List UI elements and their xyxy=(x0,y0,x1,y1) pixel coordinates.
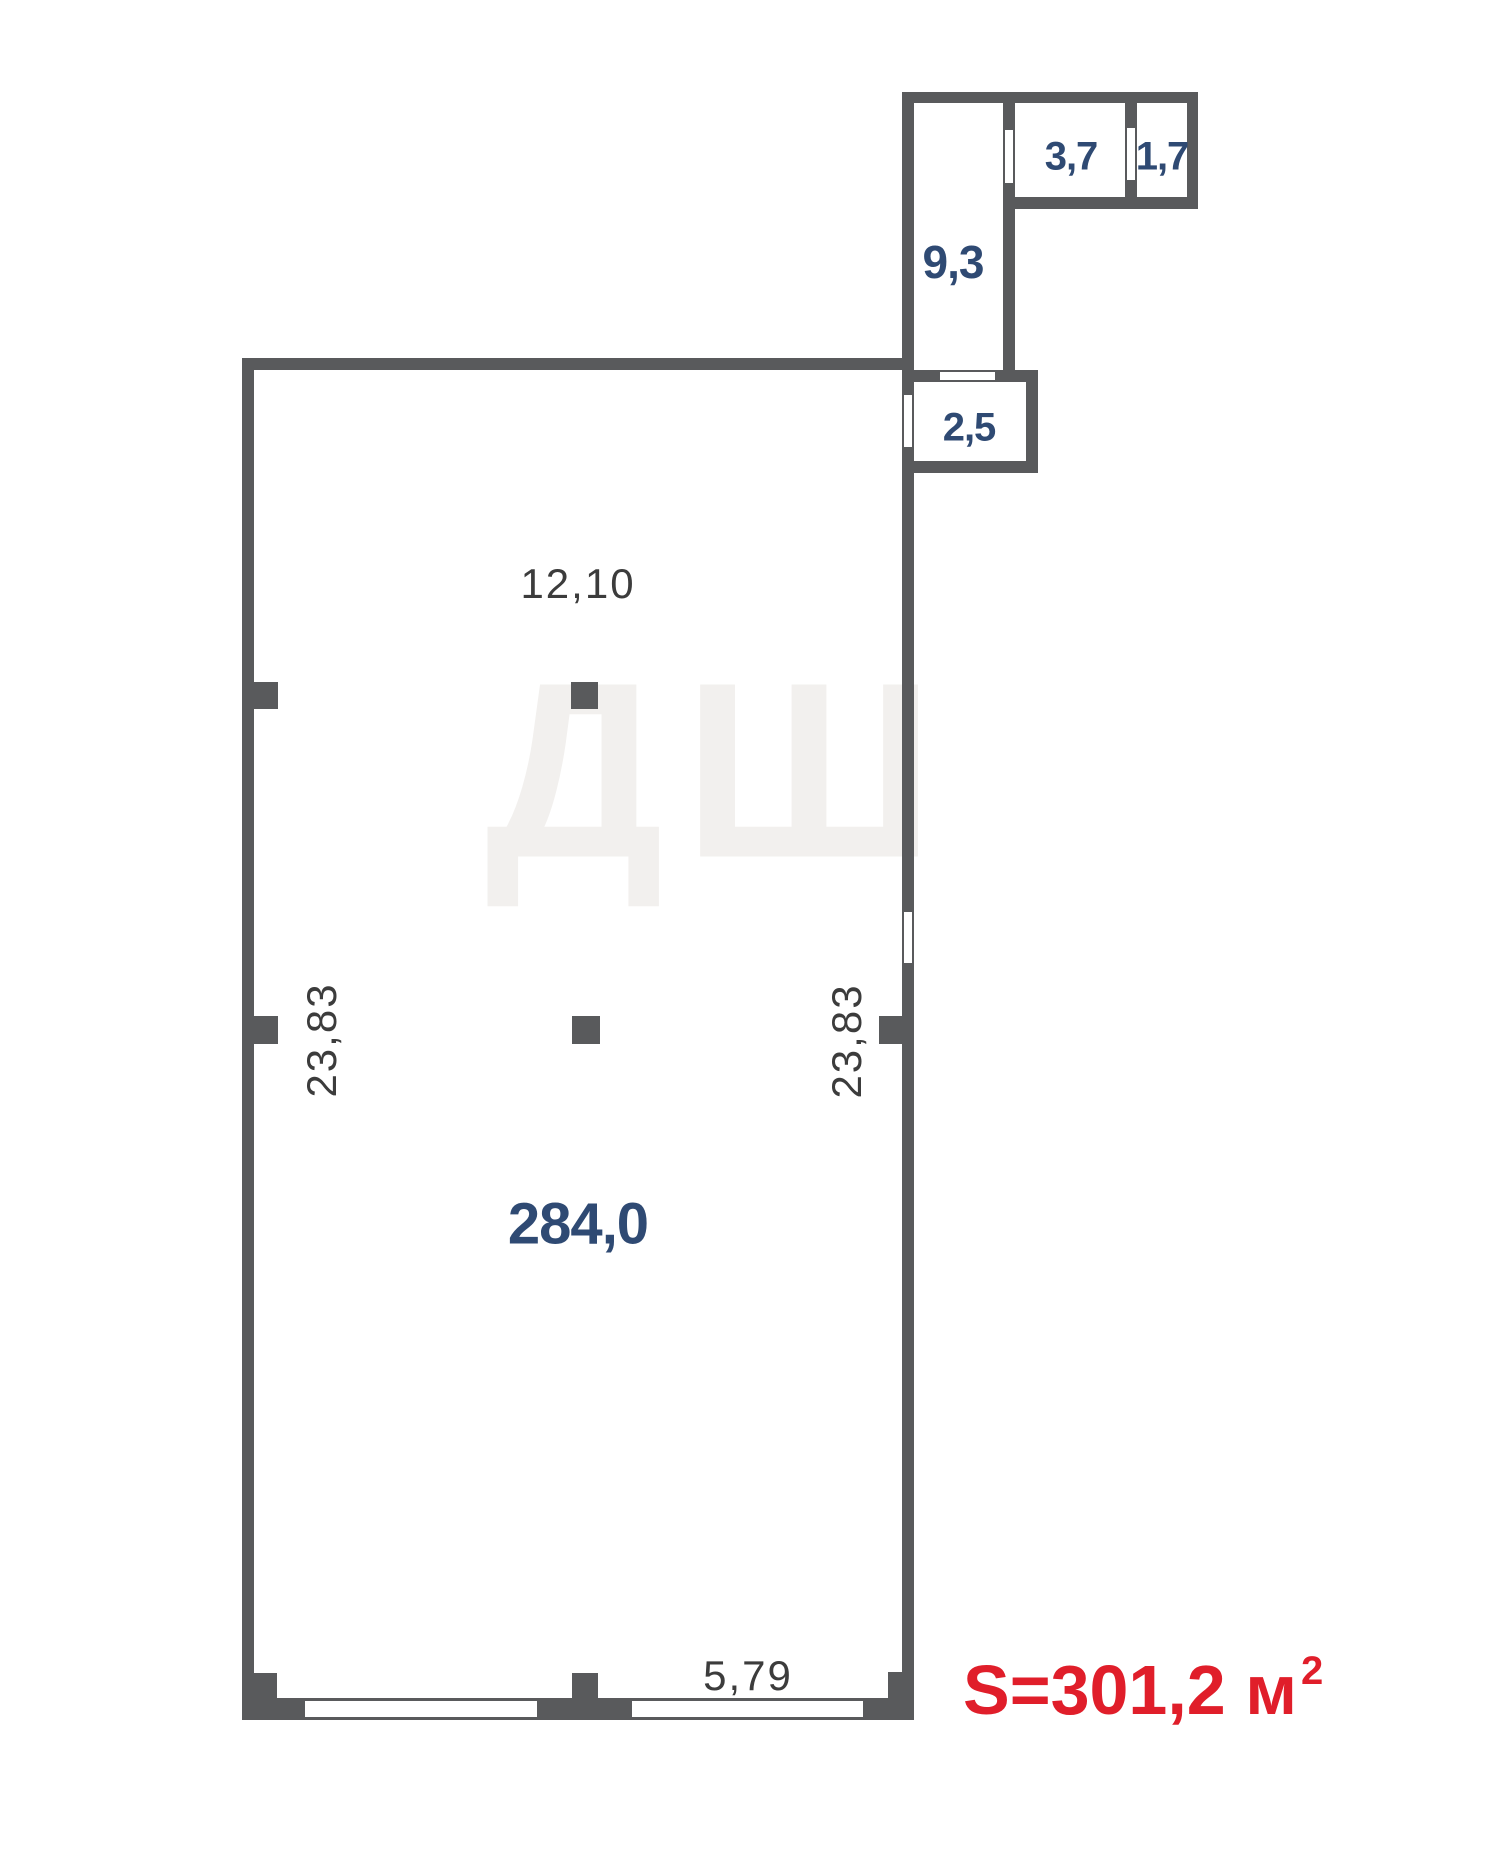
annex-rooms-bottom-wall xyxy=(1003,197,1198,209)
center-column-1 xyxy=(571,682,598,709)
bottom-window-2 xyxy=(632,1701,863,1717)
floor-plan: ДШ 284,0 9,3 3,7 1,7 2,5 12,10 23,83 23,… xyxy=(0,0,1500,1858)
door-25-to-main xyxy=(902,395,914,447)
dimension-bottom-width: 5,79 xyxy=(703,1652,793,1700)
r25-right-wall xyxy=(1026,370,1038,473)
left-wall-pilaster-1 xyxy=(254,682,278,709)
total-area-superscript: 2 xyxy=(1301,1649,1323,1693)
left-wall-pilaster-2 xyxy=(254,1016,278,1044)
main-top-wall xyxy=(242,358,914,370)
bottom-center-column xyxy=(572,1673,598,1699)
corridor-left-wall xyxy=(902,92,914,370)
right-wall-pilaster-2 xyxy=(879,1016,902,1044)
corridor-area-label: 9,3 xyxy=(923,235,984,289)
main-right-wall-door xyxy=(902,912,914,963)
watermark: ДШ xyxy=(485,627,954,914)
annex-right-wall xyxy=(1187,92,1198,209)
room-37-area-label: 3,7 xyxy=(1045,135,1098,180)
total-area-text: S=301,2 м xyxy=(963,1651,1297,1729)
dimension-top-width: 12,10 xyxy=(520,560,635,608)
bottom-window-1 xyxy=(305,1701,537,1717)
annex-top-wall xyxy=(902,92,1198,103)
door-corridor-to-25 xyxy=(940,370,995,382)
center-column-2 xyxy=(572,1016,600,1044)
bottom-right-corner-column-foot xyxy=(865,1700,888,1720)
total-area-label: S=301,2 м2 xyxy=(963,1650,1323,1730)
bottom-right-corner-column xyxy=(888,1672,914,1720)
dimension-left-height: 23,83 xyxy=(298,982,346,1097)
main-right-wall xyxy=(902,358,914,1698)
room-17-area-label: 1,7 xyxy=(1136,135,1189,180)
r25-bottom-wall xyxy=(902,461,1038,473)
main-left-wall xyxy=(242,358,254,1720)
room-25-area-label: 2,5 xyxy=(943,406,996,451)
dimension-right-height: 23,83 xyxy=(823,983,871,1098)
bottom-left-corner-column xyxy=(242,1673,277,1720)
door-corridor-to-37 xyxy=(1003,130,1015,183)
main-room-area-label: 284,0 xyxy=(508,1191,648,1258)
